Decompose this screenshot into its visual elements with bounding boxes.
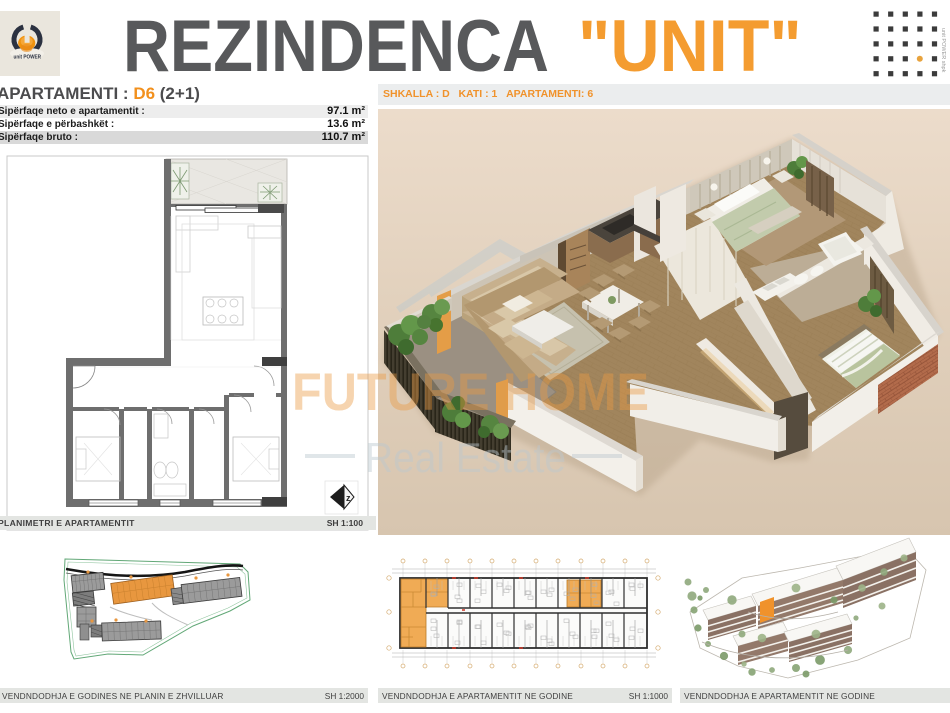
svg-text:VENDNDODHJA E APARTAMENTIT NE: VENDNDODHJA E APARTAMENTIT NE GODINE [684,691,875,701]
svg-text:VENDNDODHJA E GODINES NE PLANI: VENDNDODHJA E GODINES NE PLANIN E ZHVILL… [2,691,224,701]
svg-text:VENDNDODHJA E APARTAMENTIT NE: VENDNDODHJA E APARTAMENTIT NE GODINE [382,691,573,701]
svg-text:SH 1:1000: SH 1:1000 [629,691,669,701]
svg-text:SH 1:2000: SH 1:2000 [325,691,365,701]
